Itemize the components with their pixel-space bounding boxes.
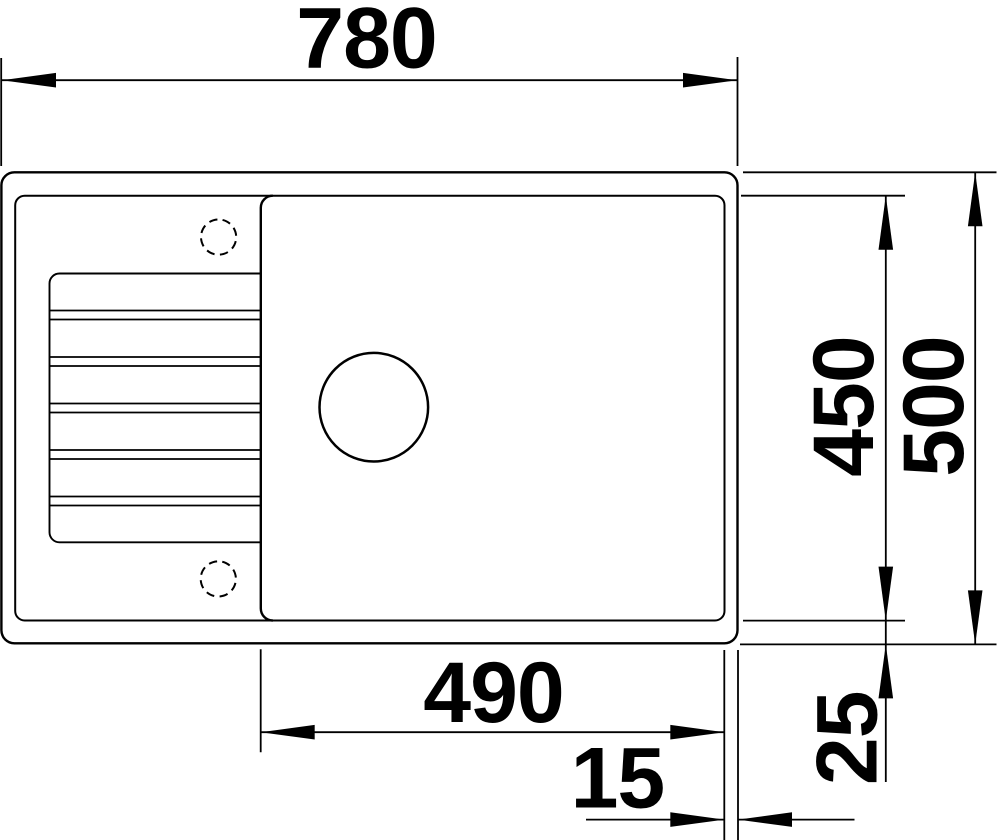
svg-text:25: 25	[800, 691, 896, 785]
svg-text:15: 15	[571, 730, 665, 826]
svg-text:500: 500	[886, 336, 982, 477]
svg-text:450: 450	[796, 336, 892, 477]
svg-text:780: 780	[296, 0, 437, 87]
svg-text:490: 490	[423, 645, 564, 741]
